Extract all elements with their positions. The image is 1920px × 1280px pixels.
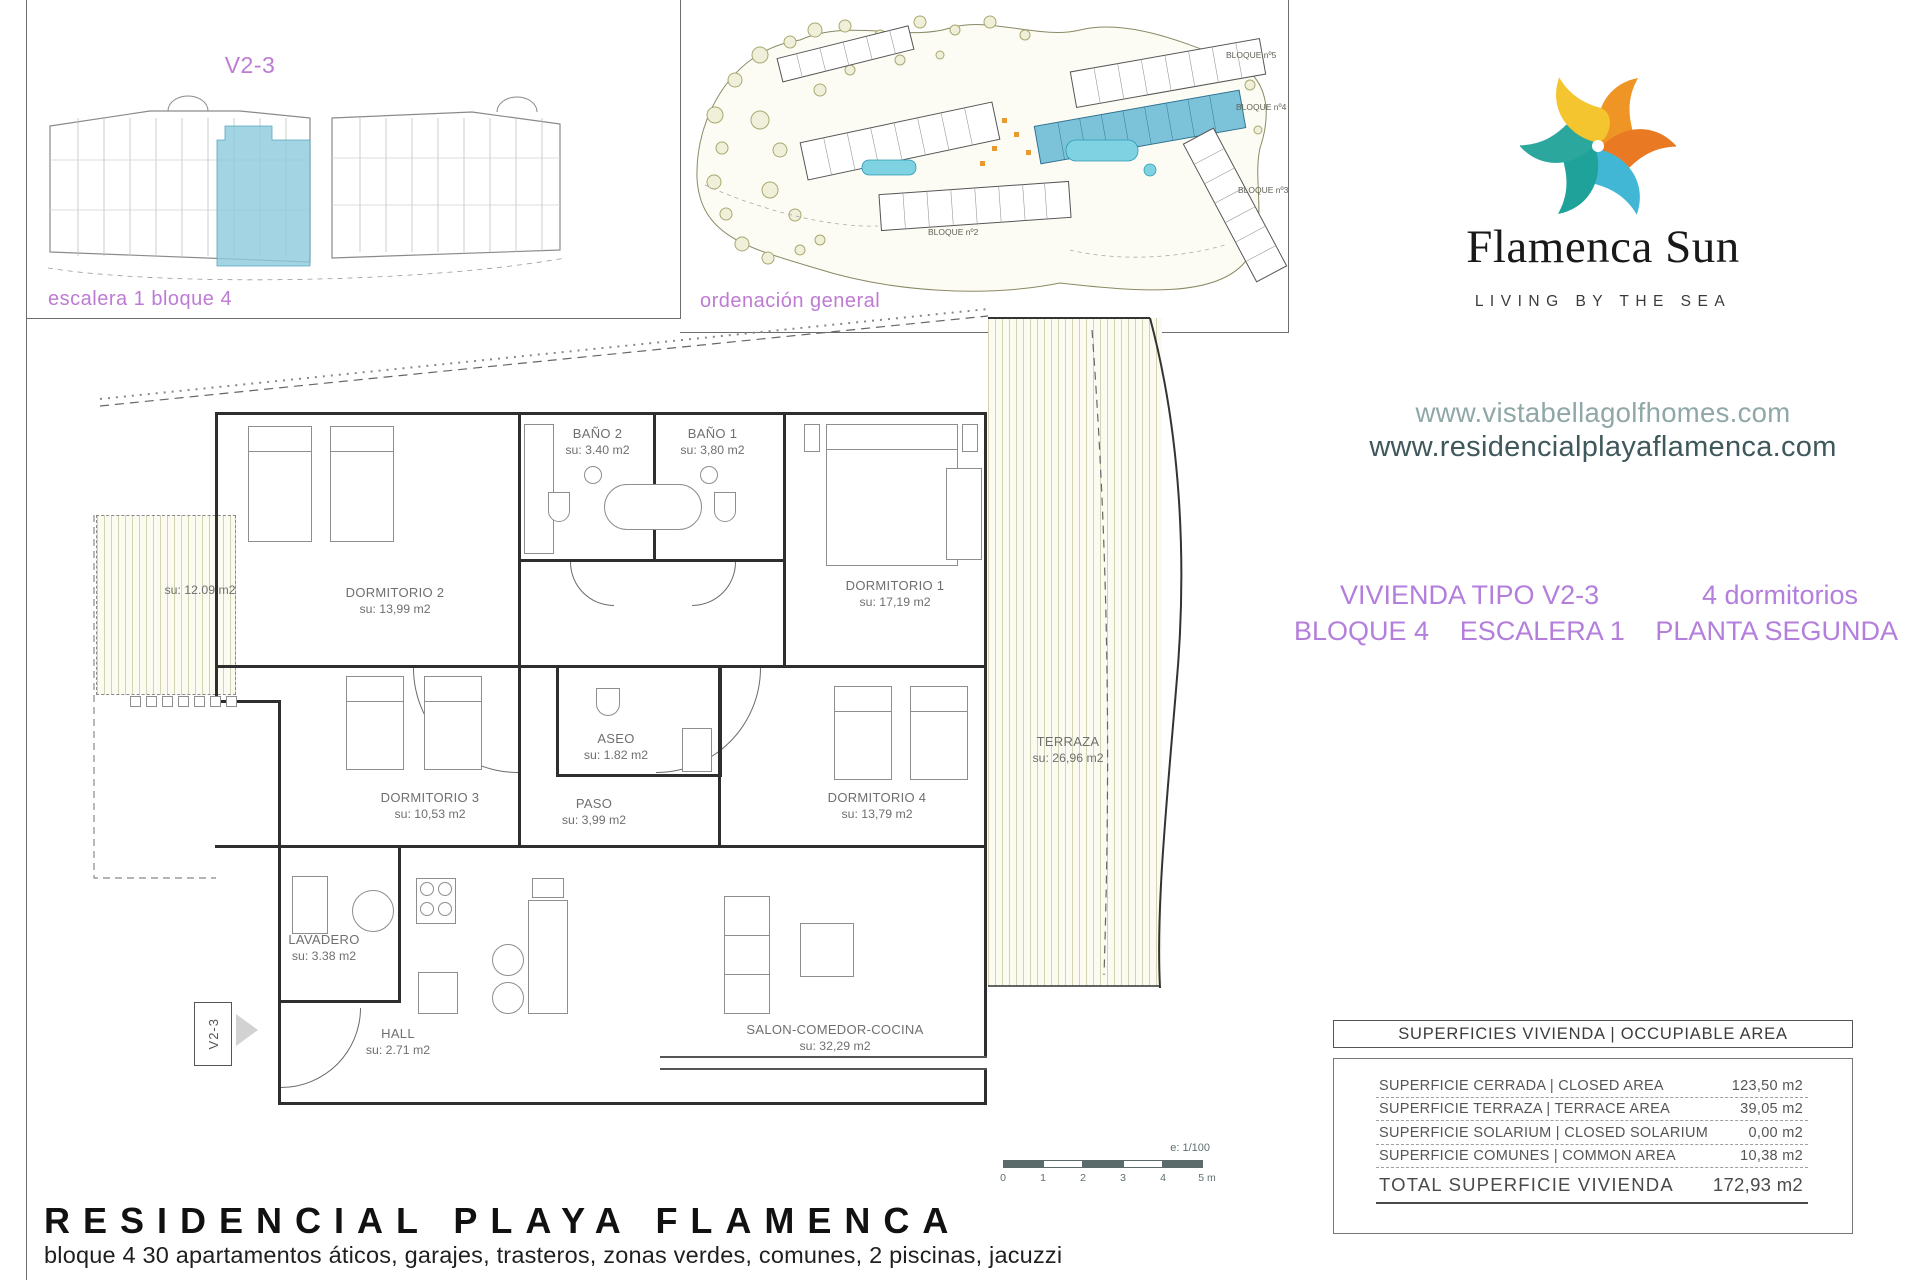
- stool: [492, 944, 524, 976]
- wall: [215, 412, 987, 415]
- toilet: [596, 688, 620, 716]
- site-plan-block3-label: BLOQUE nº3: [1238, 185, 1288, 195]
- room-label-bano2: BAÑO 2su: 3.40 m2: [540, 426, 655, 458]
- wall: [278, 1000, 401, 1003]
- unit-locator-drawing: [48, 96, 565, 280]
- site-plan-block2-label: BLOQUE nº2: [928, 227, 978, 237]
- room-label-hall: HALLsu: 2.71 m2: [338, 1026, 458, 1058]
- wall: [215, 845, 987, 848]
- scale-tick: 5 m: [1198, 1172, 1216, 1184]
- unit-info-line2: BLOQUE 4 ESCALERA 1 PLANTA SEGUNDA: [1294, 616, 1898, 647]
- table-divider: [1376, 1097, 1808, 1098]
- panel1-bottom-border: [26, 318, 681, 319]
- scale-segment: [1003, 1160, 1043, 1168]
- panel-divider-2: [1288, 0, 1289, 332]
- room-label-dormitorio4: DORMITORIO 4su: 13,79 m2: [787, 790, 967, 822]
- kitchen-table: [352, 890, 394, 932]
- page-left-border: [26, 0, 27, 1280]
- wall: [278, 700, 281, 1105]
- areas-table-row: SUPERFICIE SOLARIUM | CLOSED SOLARIUM0,0…: [1379, 1125, 1803, 1141]
- bathtub: [604, 484, 702, 530]
- room-label-salon: SALON-COMEDOR-COCINAsu: 32,29 m2: [725, 1022, 945, 1054]
- planter-box: [146, 696, 157, 707]
- planter-box: [194, 696, 205, 707]
- table-divider: [1376, 1120, 1808, 1121]
- project-title: RESIDENCIAL PLAYA FLAMENCA: [44, 1200, 961, 1242]
- website-primary-link[interactable]: www.vistabellagolfhomes.com: [1300, 397, 1906, 429]
- wall: [398, 845, 401, 1003]
- areas-table-header: SUPERFICIES VIVIENDA | OCCUPIABLE AREA: [1333, 1020, 1853, 1048]
- bed: [834, 686, 892, 780]
- wall: [518, 412, 521, 668]
- planter-box: [130, 696, 141, 707]
- washing-machine: [292, 876, 328, 934]
- site-plan-highlighted-block: [1034, 90, 1245, 164]
- entry-unit-label: V2-3: [194, 1002, 232, 1066]
- entry-unit-label-text: V2-3: [206, 1018, 221, 1049]
- wall: [215, 700, 281, 703]
- room-label-bano1: BAÑO 1su: 3,80 m2: [655, 426, 770, 458]
- room-label-dormitorio3: DORMITORIO 3su: 10,53 m2: [340, 790, 520, 822]
- website-secondary-link[interactable]: www.residencialplayaflamenca.com: [1300, 431, 1906, 464]
- kitchen-sink: [532, 878, 564, 898]
- washbasin: [700, 466, 718, 484]
- room-label-dormitorio1: DORMITORIO 1su: 17,19 m2: [805, 578, 985, 610]
- unit-info-line1: VIVIENDA TIPO V2-3 4 dormitorios: [1340, 580, 1858, 611]
- scale-tick: 1: [1040, 1172, 1046, 1184]
- site-plan-caption: ordenación general: [700, 290, 880, 313]
- toilet: [548, 492, 570, 522]
- table-total-underline: [1376, 1202, 1808, 1204]
- nightstand: [804, 424, 820, 452]
- kitchen-island: [528, 900, 568, 1014]
- entry-arrow-icon: [236, 1014, 258, 1046]
- bed: [248, 426, 312, 542]
- areas-table-row: SUPERFICIE CERRADA | CLOSED AREA123,50 m…: [1379, 1078, 1803, 1094]
- stove-burner: [438, 902, 452, 916]
- scale-tick: 4: [1160, 1172, 1166, 1184]
- website-links: www.vistabellagolfhomes.com www.residenc…: [1300, 397, 1906, 464]
- bed: [346, 676, 404, 770]
- unit-locator-title: V2-3: [180, 52, 320, 79]
- toilet: [714, 492, 736, 522]
- table-divider: [1376, 1167, 1808, 1168]
- areas-table-row: SUPERFICIE COMUNES | COMMON AREA10,38 m2: [1379, 1148, 1803, 1164]
- unit-block: BLOQUE 4: [1294, 616, 1429, 647]
- panel2-bottom-border: [680, 332, 1289, 333]
- stove-burner: [420, 902, 434, 916]
- scale-tick: 0: [1000, 1172, 1006, 1184]
- kitchen-cabinet: [418, 972, 458, 1014]
- scale-segment: [1083, 1160, 1123, 1168]
- areas-table-header-text: SUPERFICIES VIVIENDA | OCCUPIABLE AREA: [1398, 1025, 1788, 1044]
- double-bed: [826, 424, 958, 566]
- bed: [910, 686, 968, 780]
- salon-terrace-window: [660, 1056, 987, 1070]
- coffee-table: [800, 923, 854, 977]
- wall: [518, 559, 786, 562]
- flamenca-sun-logo: [1520, 68, 1676, 224]
- scale-tick: 3: [1120, 1172, 1126, 1184]
- bed: [330, 426, 394, 542]
- scale-tick: 2: [1080, 1172, 1086, 1184]
- washbasin: [584, 466, 602, 484]
- site-plan-block4-label: BLOQUE nº4: [1236, 102, 1286, 112]
- site-plan-block5-label: BLOQUE nº5: [1226, 50, 1276, 60]
- room-label-dormitorio2: DORMITORIO 2su: 13,99 m2: [305, 585, 485, 617]
- planter-box: [226, 696, 237, 707]
- stool: [492, 982, 524, 1014]
- planter-box: [210, 696, 221, 707]
- unit-type: VIVIENDA TIPO V2-3: [1340, 580, 1599, 611]
- site-plan-drawing: [697, 16, 1287, 291]
- nightstand: [962, 424, 978, 452]
- stove-burner: [438, 882, 452, 896]
- scale-segment: [1163, 1160, 1203, 1168]
- planter-box: [162, 696, 173, 707]
- wall: [215, 412, 218, 703]
- wall: [783, 412, 786, 668]
- room-label-left-terrace: su: 12.09 m2: [130, 582, 270, 598]
- room-label-terraza: TERRAZAsu: 26,96 m2: [998, 734, 1138, 766]
- room-label-paso: PASOsu: 3,99 m2: [534, 796, 654, 828]
- unit-bedrooms: 4 dormitorios: [1702, 580, 1858, 611]
- shelf-unit: [724, 896, 770, 1014]
- planter-box: [178, 696, 189, 707]
- project-subtitle: bloque 4 30 apartamentos áticos, garajes…: [44, 1242, 1062, 1269]
- room-label-lavadero: LAVADEROsu: 3.38 m2: [268, 932, 380, 964]
- scale-ratio-label: e: 1/100: [1135, 1142, 1210, 1154]
- unit-locator-caption: escalera 1 bloque 4: [48, 288, 232, 311]
- brand-tagline: LIVING BY THE SEA: [1320, 293, 1886, 311]
- wall: [278, 1102, 987, 1105]
- terrace-right-hatch: [988, 318, 1162, 986]
- panel-divider-1: [680, 0, 681, 318]
- washbasin: [682, 728, 712, 772]
- wall: [984, 412, 987, 1105]
- unit-floor: PLANTA SEGUNDA: [1655, 616, 1898, 647]
- stove-burner: [420, 882, 434, 896]
- wardrobe: [946, 468, 982, 560]
- door-arc: [692, 562, 736, 606]
- logo-pinwheel-icon: [1520, 77, 1676, 214]
- unit-stair: ESCALERA 1: [1460, 616, 1625, 647]
- brand-name: Flamenca Sun: [1320, 220, 1886, 274]
- door-arc: [570, 562, 614, 606]
- scale-segment: [1043, 1160, 1083, 1168]
- table-divider: [1376, 1144, 1808, 1145]
- areas-table-row: SUPERFICIE TERRAZA | TERRACE AREA39,05 m…: [1379, 1101, 1803, 1117]
- scale-segment: [1123, 1160, 1163, 1168]
- areas-table-total-row: TOTAL SUPERFICIE VIVIENDA172,93 m2: [1379, 1174, 1803, 1196]
- room-label-aseo: ASEOsu: 1.82 m2: [556, 731, 676, 763]
- bed: [424, 676, 482, 770]
